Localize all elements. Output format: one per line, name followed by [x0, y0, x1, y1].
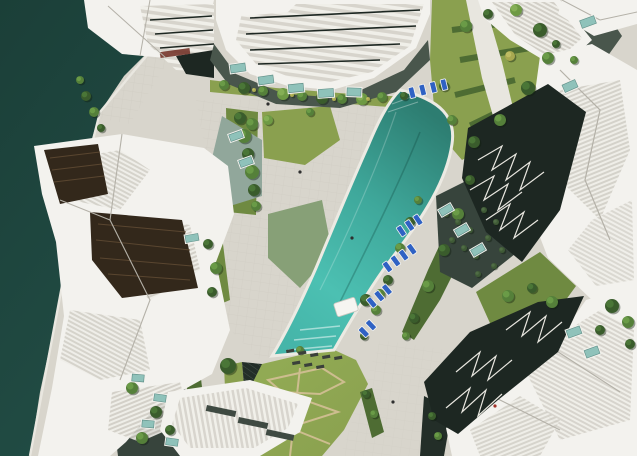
skylight	[140, 419, 155, 430]
aerial-render	[0, 0, 637, 456]
skylight	[152, 392, 168, 404]
person-dot	[493, 404, 496, 407]
skylight	[287, 82, 306, 94]
skylight	[130, 373, 145, 384]
skylight	[164, 436, 180, 448]
person-dot	[298, 170, 301, 173]
person-dot	[350, 236, 353, 239]
person-dot	[266, 102, 269, 105]
skylight	[317, 87, 335, 99]
aerial-scene	[0, 0, 637, 456]
skylight	[346, 86, 363, 97]
person-dot	[391, 400, 394, 403]
